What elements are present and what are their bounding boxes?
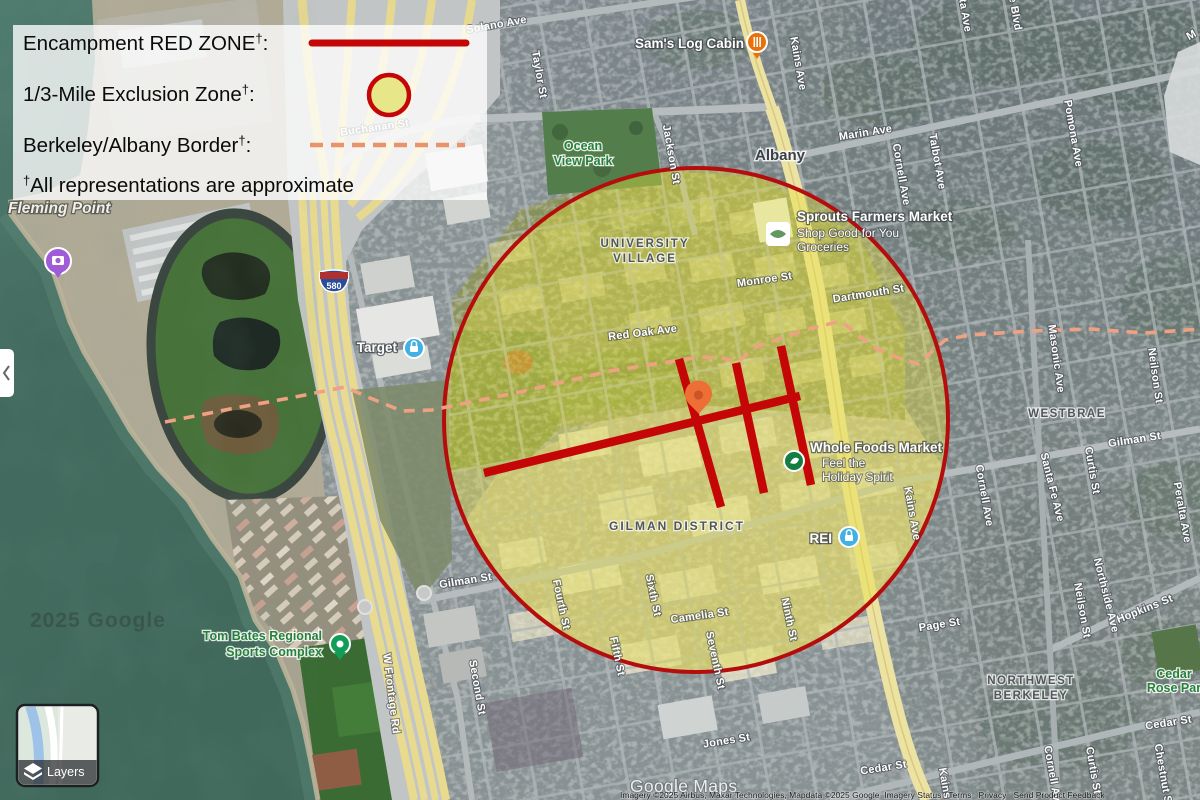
- svg-text:Whole Foods Market: Whole Foods Market: [810, 440, 943, 455]
- svg-text:Sam's Log Cabin: Sam's Log Cabin: [635, 36, 744, 51]
- svg-text:2025 Google: 2025 Google: [30, 609, 166, 632]
- svg-text:580: 580: [326, 281, 341, 291]
- svg-text:Groceries: Groceries: [797, 240, 849, 254]
- svg-text:REI: REI: [809, 531, 832, 546]
- svg-text:WESTBRAE: WESTBRAE: [1028, 408, 1106, 420]
- svg-text:Albany: Albany: [755, 147, 806, 164]
- svg-text:VILLAGE: VILLAGE: [613, 253, 677, 265]
- svg-text:Berkeley/Albany Border†:: Berkeley/Albany Border†:: [23, 133, 251, 158]
- svg-text:Fleming Point: Fleming Point: [8, 200, 111, 217]
- svg-text:Cedar: Cedar: [1156, 667, 1192, 681]
- svg-text:Rose Par: Rose Par: [1147, 681, 1200, 695]
- svg-text:Encampment RED ZONE†:: Encampment RED ZONE†:: [23, 31, 268, 56]
- svg-text:Target: Target: [357, 340, 398, 355]
- svg-text:NORTHWEST: NORTHWEST: [987, 675, 1075, 687]
- svg-text:Feel the: Feel the: [822, 456, 866, 470]
- svg-text:Holiday Spirit: Holiday Spirit: [822, 470, 893, 484]
- svg-text:View Park: View Park: [554, 154, 613, 168]
- svg-text:Sports Complex: Sports Complex: [226, 645, 322, 659]
- svg-text:Layers: Layers: [47, 765, 85, 779]
- svg-text:Sprouts Farmers Market: Sprouts Farmers Market: [797, 209, 953, 224]
- svg-text:BERKELEY: BERKELEY: [994, 690, 1069, 702]
- svg-text:GILMAN DISTRICT: GILMAN DISTRICT: [609, 519, 745, 533]
- svg-text:†All representations are appro: †All representations are approximate: [23, 173, 354, 198]
- svg-text:Ocean: Ocean: [564, 139, 602, 153]
- svg-text:1/3-Mile Exclusion Zone†:: 1/3-Mile Exclusion Zone†:: [23, 82, 255, 107]
- svg-text:Tom Bates Regional: Tom Bates Regional: [203, 629, 322, 643]
- svg-text:UNIVERSITY: UNIVERSITY: [600, 238, 689, 250]
- svg-text:Imagery ©2025 Airbus, Maxar Te: Imagery ©2025 Airbus, Maxar Technologies…: [620, 790, 1105, 800]
- svg-text:Shop Good-for You: Shop Good-for You: [797, 226, 899, 240]
